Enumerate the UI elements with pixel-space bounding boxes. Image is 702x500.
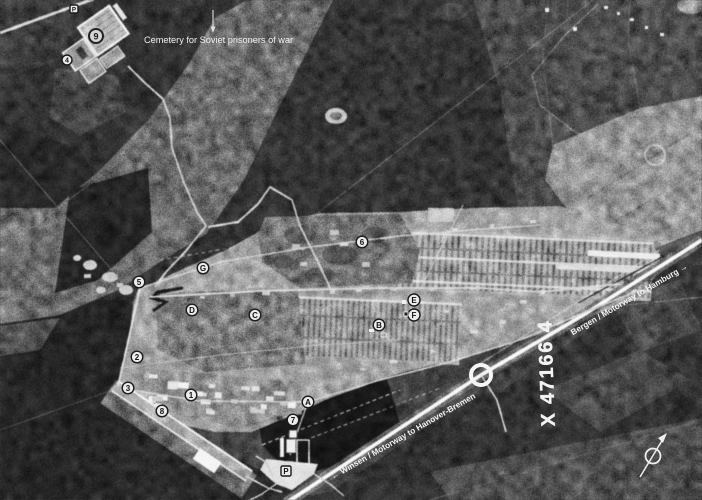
svg-text:4: 4 [65,58,69,65]
svg-text:D: D [189,306,195,315]
svg-text:F: F [412,311,417,320]
svg-text:8: 8 [160,407,165,416]
svg-text:P: P [72,7,76,14]
svg-text:5: 5 [137,278,142,287]
svg-text:E: E [411,296,417,305]
svg-text:G: G [200,264,206,273]
svg-text:B: B [376,321,382,330]
svg-text:7: 7 [291,416,296,425]
svg-text:9: 9 [93,32,98,42]
svg-text:Cemetery for Soviet prisoners: Cemetery for Soviet prisoners of war [144,35,293,45]
svg-text:Bergen / Motorway to Hamburg →: Bergen / Motorway to Hamburg → [569,261,689,337]
svg-text:3: 3 [126,384,131,393]
svg-text:C: C [252,311,258,320]
svg-text:P: P [283,467,288,476]
svg-text:X 47166 4: X 47166 4 [534,319,560,427]
svg-text:A: A [305,398,311,407]
svg-text:1: 1 [189,391,194,400]
svg-text:6: 6 [360,238,365,247]
svg-text:← Winsen / Motorway to Hanover: ← Winsen / Motorway to Hanover-Bremen [329,391,477,482]
svg-text:2: 2 [135,353,140,362]
